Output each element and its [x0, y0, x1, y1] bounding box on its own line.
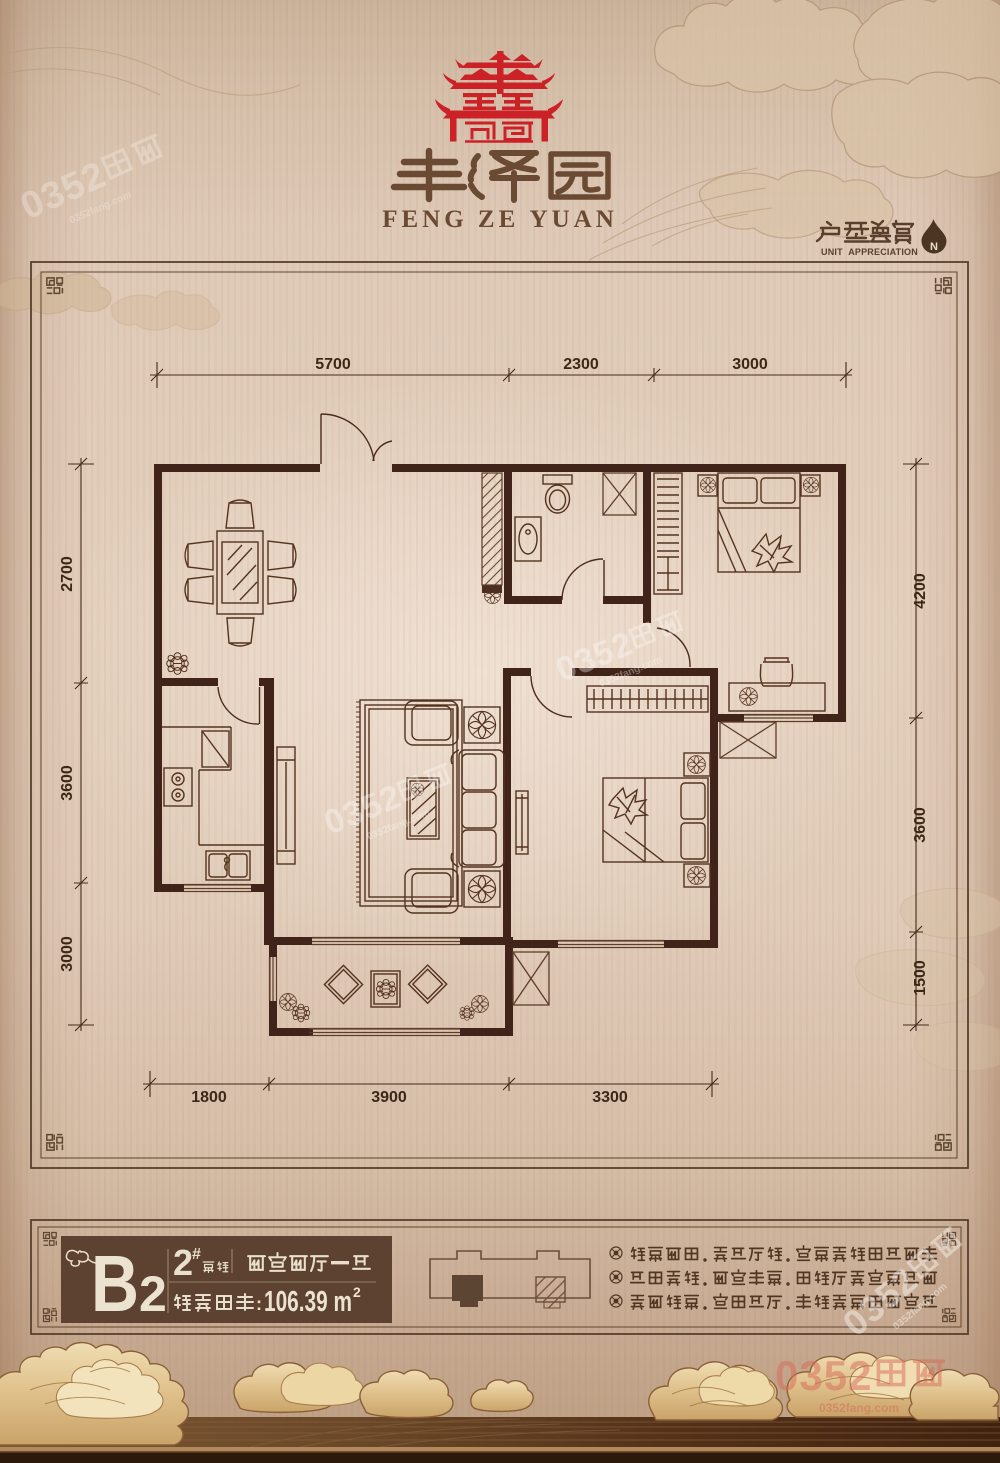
svg-text:0352fang.com: 0352fang.com	[819, 1401, 899, 1415]
svg-text:2: 2	[173, 1242, 193, 1283]
svg-text:3000: 3000	[732, 356, 768, 373]
svg-text:3300: 3300	[592, 1089, 628, 1106]
svg-text:1800: 1800	[191, 1089, 227, 1106]
svg-text:2: 2	[353, 1284, 361, 1300]
svg-text:0352: 0352	[835, 1259, 926, 1344]
svg-text:0352: 0352	[775, 1352, 872, 1399]
svg-text:4200: 4200	[912, 573, 929, 609]
svg-text:N: N	[930, 241, 938, 253]
svg-text::: :	[256, 1294, 262, 1314]
svg-text:3900: 3900	[371, 1089, 407, 1106]
svg-text:#: #	[192, 1246, 201, 1263]
svg-text:UNIT APPRECIATION: UNIT APPRECIATION	[821, 247, 918, 257]
svg-text:2700: 2700	[59, 556, 76, 592]
svg-text:5700: 5700	[315, 356, 351, 373]
svg-text:2300: 2300	[563, 356, 599, 373]
svg-text:FENG ZE YUAN: FENG ZE YUAN	[382, 206, 618, 233]
svg-text:0352: 0352	[15, 154, 113, 228]
svg-text:3600: 3600	[912, 807, 929, 843]
svg-text:3000: 3000	[59, 936, 76, 972]
svg-text:106.39 m: 106.39 m	[264, 1286, 352, 1318]
svg-text:1500: 1500	[912, 960, 929, 996]
svg-text:B: B	[91, 1239, 139, 1328]
svg-text:3600: 3600	[59, 765, 76, 801]
svg-text:2: 2	[139, 1266, 167, 1322]
